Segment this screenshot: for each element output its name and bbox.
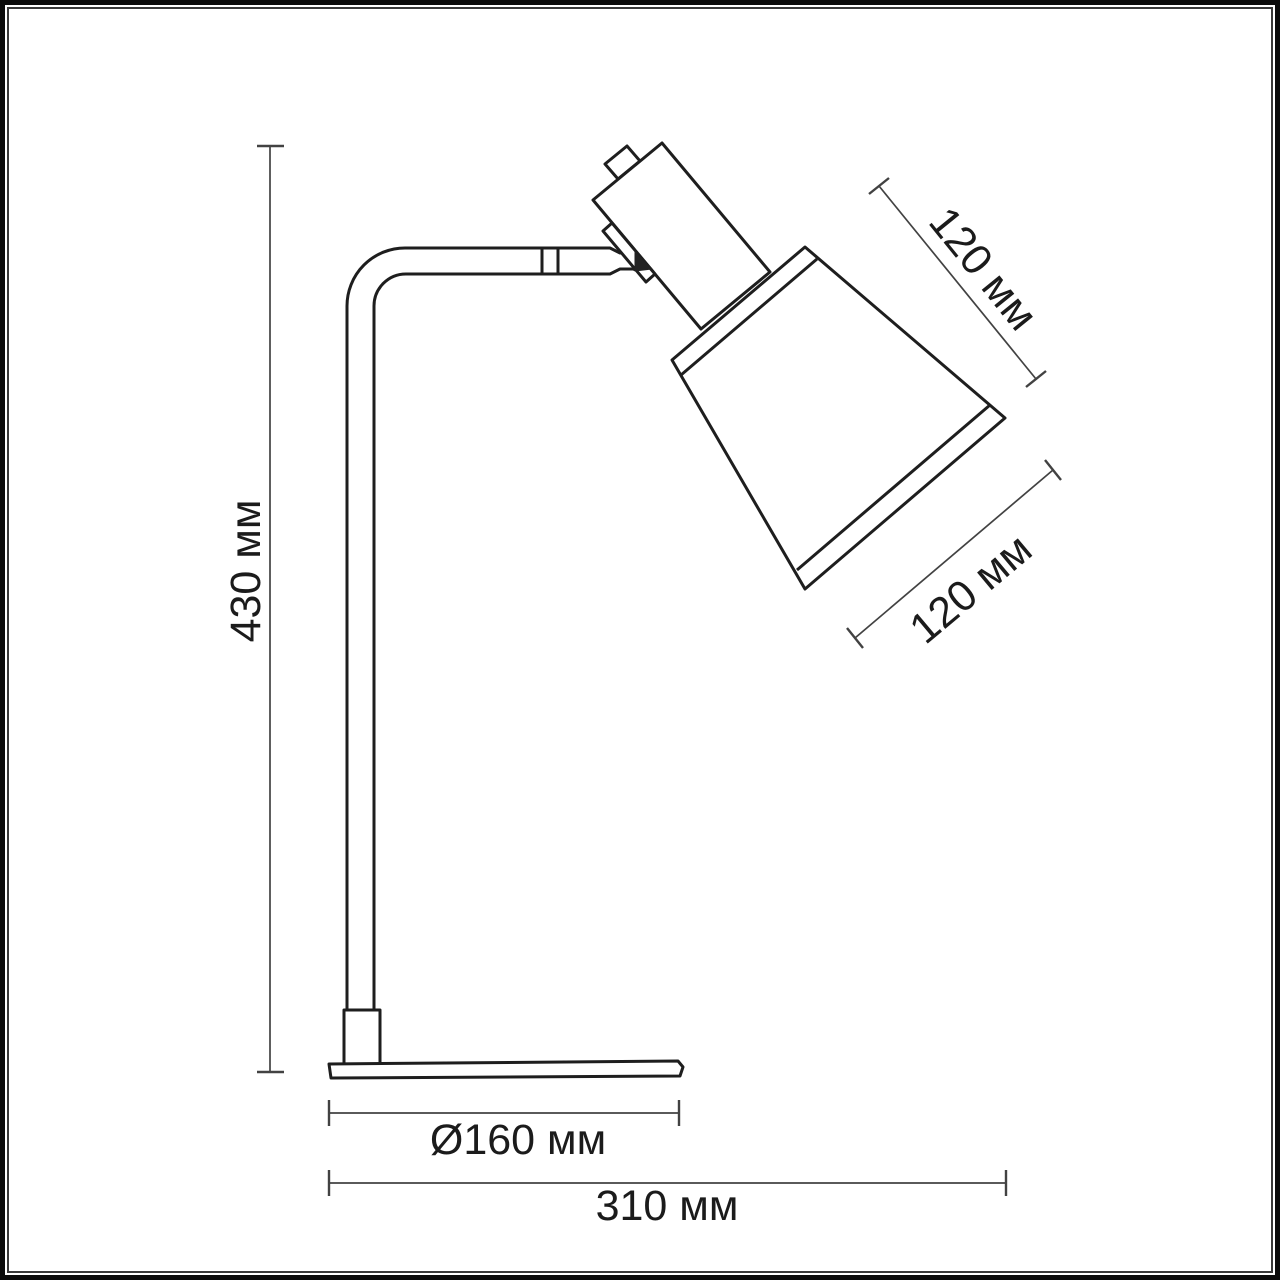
dim-height: 430 мм bbox=[222, 146, 284, 1072]
lamp-stem bbox=[347, 248, 406, 1010]
dim-total-depth: 310 мм bbox=[329, 1170, 1006, 1230]
dim-base-diameter-label: Ø160 мм bbox=[430, 1116, 606, 1164]
dim-height-label: 430 мм bbox=[222, 500, 270, 643]
lamp-stem-collar bbox=[344, 1010, 380, 1064]
lamp-arm bbox=[405, 248, 635, 274]
dim-base-diameter: Ø160 мм bbox=[329, 1100, 679, 1164]
dim-total-depth-label: 310 мм bbox=[596, 1182, 739, 1230]
lamp-dimension-drawing: 430 мм 120 мм 120 мм Ø160 мм bbox=[0, 0, 1280, 1280]
lamp-base bbox=[329, 1061, 683, 1078]
dim-shade-upper-label: 120 мм bbox=[919, 198, 1046, 339]
lamp-figure bbox=[329, 143, 1005, 1078]
dim-shade-lower-label: 120 мм bbox=[901, 525, 1041, 654]
